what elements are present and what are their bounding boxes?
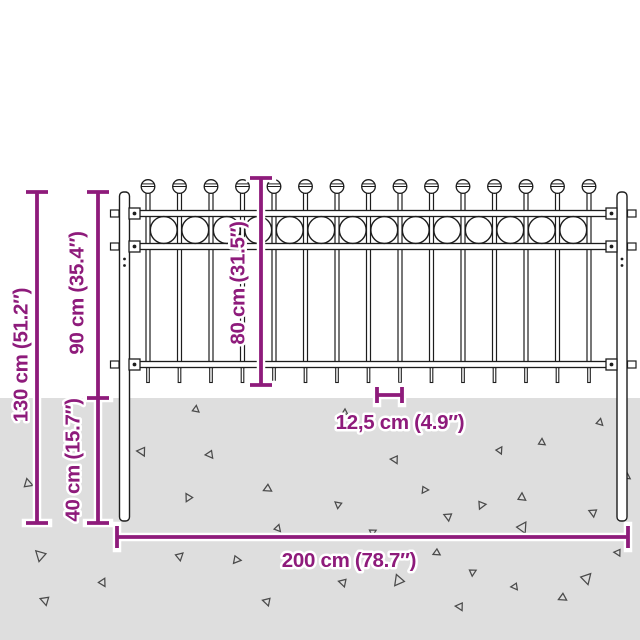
ring-ornament <box>434 217 461 244</box>
picket-tip <box>588 368 591 383</box>
ring-ornament <box>150 217 177 244</box>
picket-tip <box>178 368 181 383</box>
label-depth-below-ground: 40 cm (15.7″) <box>62 398 85 521</box>
label-total-height: 130 cm (51.2″) <box>10 288 33 422</box>
bracket-bolt <box>610 245 614 249</box>
picket-bar <box>178 193 182 368</box>
bracket-bolt <box>133 363 137 367</box>
picket-tip <box>367 368 370 383</box>
picket-bar <box>398 193 402 368</box>
post-hole <box>123 264 126 267</box>
picket-tip <box>273 368 276 383</box>
ring-ornament <box>465 217 492 244</box>
bracket-tab <box>111 243 120 250</box>
picket-tip <box>304 368 307 383</box>
ring-ornament <box>402 217 429 244</box>
picket-bar <box>461 193 465 368</box>
label-height-above-ground: 90 cm (35.4″) <box>66 231 89 354</box>
post-hole <box>621 258 624 261</box>
bracket-bolt <box>610 212 614 216</box>
picket-bar <box>524 193 528 368</box>
post-bar <box>617 192 627 521</box>
picket-bar <box>430 193 434 368</box>
ring-ornament <box>276 217 303 244</box>
picket-tip <box>399 368 402 383</box>
picket-tip <box>556 368 559 383</box>
dimension-line <box>250 178 272 385</box>
picket-tip <box>210 368 213 383</box>
bracket-bolt <box>133 245 137 249</box>
picket-bar <box>493 193 497 368</box>
dim-panel-height <box>250 178 272 385</box>
rail <box>129 244 618 250</box>
fence-dimension-diagram: 130 cm (51.2″) 90 cm (35.4″) 40 cm (15.7… <box>0 0 640 640</box>
bracket-tab <box>628 243 637 250</box>
bracket-bolt <box>610 363 614 367</box>
picket-bar <box>304 193 308 368</box>
picket-bar <box>587 193 591 368</box>
ring-ornament <box>339 217 366 244</box>
label-panel-height: 80 cm (31.5″) <box>227 221 250 344</box>
picket-tip <box>493 368 496 383</box>
label-picket-spacing: 12,5 cm (4.9″) <box>336 411 465 434</box>
ring-ornament <box>497 217 524 244</box>
picket-bar <box>556 193 560 368</box>
picket-bar <box>272 193 276 368</box>
post-bar <box>120 192 130 521</box>
rail <box>129 211 618 217</box>
picket-bar <box>335 193 339 368</box>
label-total-width: 200 cm (78.7″) <box>282 549 416 572</box>
picket-tip <box>462 368 465 383</box>
bracket-tab <box>111 361 120 368</box>
post-hole <box>123 258 126 261</box>
diagram-canvas: 130 cm (51.2″) 90 cm (35.4″) 40 cm (15.7… <box>0 0 640 640</box>
bracket-tab <box>628 210 637 217</box>
picket-tip <box>147 368 150 383</box>
post-hole <box>621 264 624 267</box>
ring-ornament <box>528 217 555 244</box>
ring-ornament <box>182 217 209 244</box>
picket-tip <box>241 368 244 383</box>
picket-tip <box>525 368 528 383</box>
ring-ornament <box>308 217 335 244</box>
bracket-tab <box>111 210 120 217</box>
picket-tip <box>336 368 339 383</box>
ring-ornament <box>371 217 398 244</box>
bracket-bolt <box>133 212 137 216</box>
ring-ornament <box>560 217 587 244</box>
picket-tip <box>430 368 433 383</box>
bracket-tab <box>628 361 637 368</box>
rail <box>129 362 618 368</box>
picket-bar <box>367 193 371 368</box>
picket-bar <box>146 193 150 368</box>
picket-bar <box>209 193 213 368</box>
